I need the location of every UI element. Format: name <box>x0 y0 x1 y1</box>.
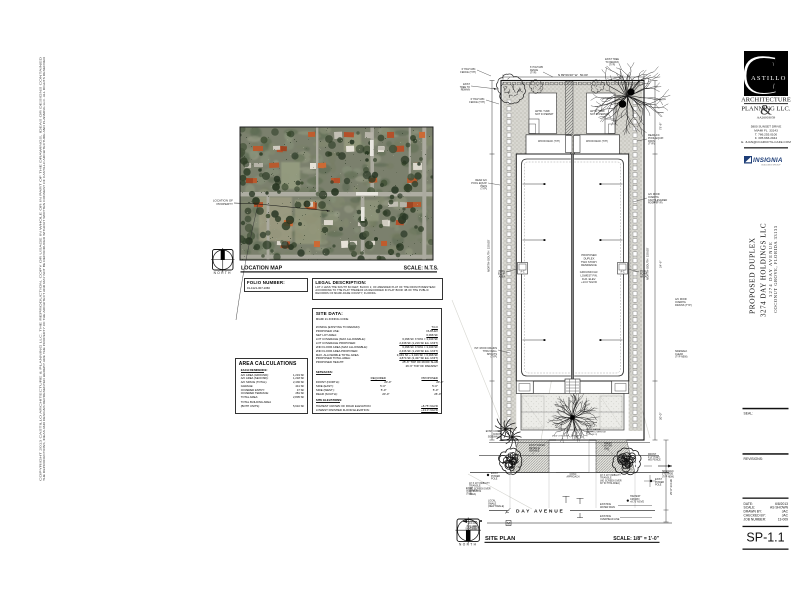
svg-text:(TYP NEW): (TYP NEW) <box>662 476 674 478</box>
svg-text:NOT IN PERMIT: NOT IN PERMIT <box>535 113 554 116</box>
svg-text:POOL: POOL <box>499 271 506 273</box>
svg-text:20'-0": 20'-0" <box>659 413 663 420</box>
svg-text:5'-0" WIDE: 5'-0" WIDE <box>662 474 674 476</box>
svg-text:TWO STORY: TWO STORY <box>581 260 597 264</box>
svg-text:COCONUT GROVE, FLORIDA 33133: COCONUT GROVE, FLORIDA 33133 <box>773 225 779 313</box>
svg-text:GROUND FLR.: GROUND FLR. <box>580 270 599 274</box>
svg-text:NORTH: NORTH <box>459 543 477 547</box>
svg-text:EXIST: EXIST <box>470 527 477 529</box>
svg-text:INSIGNIA: INSIGNIA <box>753 157 783 164</box>
svg-text:RESIDENCE: RESIDENCE <box>581 263 597 267</box>
svg-text:13-009: 13-009 <box>778 517 788 521</box>
svg-text:A-C: A-C <box>521 271 525 274</box>
svg-text:POLE: POLE <box>655 484 662 487</box>
svg-text:FLR. ELEV.: FLR. ELEV. <box>582 277 596 281</box>
svg-text:SCALE: 1/8" = 1'-0": SCALE: 1/8" = 1'-0" <box>613 536 659 542</box>
svg-text:A-C: A-C <box>621 271 625 274</box>
svg-text:(TYP): (TYP) <box>530 72 536 75</box>
svg-text:THE REPRODUCTIONS, IDEAS AND D: THE REPRODUCTIONS, IDEAS AND DESIGNS REP… <box>42 57 46 481</box>
svg-text:APPROACH: APPROACH <box>567 476 580 479</box>
svg-text:WOOD DECK (TYP): WOOD DECK (TYP) <box>538 140 560 143</box>
svg-text:(TYP): (TYP) <box>490 356 497 359</box>
svg-text:WOOD DECK (TYP): WOOD DECK (TYP) <box>586 140 608 143</box>
svg-text:(TYP): (TYP) <box>480 188 487 191</box>
svg-text:NORTH-SOUTH 150.00': NORTH-SOUTH 150.00' <box>646 247 650 280</box>
svg-text:PROPOSED: PROPOSED <box>581 253 596 257</box>
svg-text:24'-6": 24'-6" <box>659 261 663 268</box>
svg-text:EQUIP: EQUIP <box>498 274 506 276</box>
svg-text:OVERHEAD LINE: OVERHEAD LINE <box>600 518 620 521</box>
svg-text:NOT IN PERMIT: NOT IN PERMIT <box>590 113 609 116</box>
svg-text:SIDEWALK: SIDEWALK <box>466 490 478 493</box>
svg-text:N 89°09'40" W 50.00': N 89°09'40" W 50.00' <box>558 73 589 77</box>
svg-text:SIDEWALK: SIDEWALK <box>662 470 674 473</box>
svg-text:FRESH: FRESH <box>604 443 612 445</box>
svg-text:SERVICE: SERVICE <box>529 450 540 453</box>
svg-text:FENCE (TYP): FENCE (TYP) <box>460 71 476 74</box>
svg-text:CONC: CONC <box>570 474 577 476</box>
svg-text:TRIANGLE: TRIANGLE <box>600 477 612 480</box>
svg-text:SCALE: N.T.S.: SCALE: N.T.S. <box>404 266 439 272</box>
svg-text:SP-1.1: SP-1.1 <box>746 531 784 545</box>
svg-text:POLE: POLE <box>491 478 498 481</box>
svg-text:(TYP NEW): (TYP NEW) <box>675 356 688 359</box>
svg-text:SITE PLAN: SITE PLAN <box>485 536 515 542</box>
svg-text:3274 DAY AVENUE: 3274 DAY AVENUE <box>768 241 773 297</box>
svg-text:NORTH-SOUTH 150.00': NORTH-SOUTH 150.00' <box>487 239 491 272</box>
svg-text:30" IN THIS AREA): 30" IN THIS AREA) <box>600 482 620 485</box>
svg-text:ASTILLO: ASTILLO <box>751 75 787 82</box>
svg-text:(TYP OF 2): (TYP OF 2) <box>586 434 597 436</box>
svg-text:C: C <box>506 509 510 514</box>
svg-text:ARCHITECTURE: ARCHITECTURE <box>741 97 791 104</box>
svg-text:25'-0" R.O.W.: 25'-0" R.O.W. <box>669 478 673 495</box>
svg-text:WATER MAIN: WATER MAIN <box>600 506 615 509</box>
svg-text:DRAINS (TYP): DRAINS (TYP) <box>675 304 692 307</box>
svg-text:4 3/4" X 9' DEEP ... RELIEF: 4 3/4" X 9' DEEP ... RELIEF <box>552 436 580 438</box>
svg-text:ROOF (TYP): ROOF (TYP) <box>648 202 663 205</box>
svg-text:EXIST: EXIST <box>466 488 473 490</box>
svg-text:JOB NUMBER:: JOB NUMBER: <box>744 517 767 521</box>
svg-text:NORTH: NORTH <box>214 271 232 275</box>
svg-text:M: M <box>507 522 510 526</box>
svg-text:(TYP): (TYP) <box>609 64 615 67</box>
svg-text:PROPOSED DUPLEX: PROPOSED DUPLEX <box>748 237 757 314</box>
svg-text:SIDEWALK: SIDEWALK <box>488 436 501 439</box>
svg-text:3274 DAY HOLDINGS LLC: 3274 DAY HOLDINGS LLC <box>760 223 768 317</box>
svg-text:WATER: WATER <box>604 445 612 448</box>
svg-text:FENCE (TYP): FENCE (TYP) <box>469 101 485 104</box>
svg-text:(TYP): (TYP) <box>648 143 655 146</box>
svg-text:LOCATION MAP: LOCATION MAP <box>241 266 283 272</box>
svg-text:(NEW SWALE): (NEW SWALE) <box>488 505 504 508</box>
svg-text:PLANNING LLC.: PLANNING LLC. <box>741 106 791 113</box>
svg-text:10' X 10' VISIBILITY: 10' X 10' VISIBILITY <box>600 475 621 477</box>
svg-text:(NO SCREEN OVER: (NO SCREEN OVER <box>600 480 622 482</box>
svg-text:LOWEST FIN.: LOWEST FIN. <box>580 273 597 277</box>
svg-text:PROP WATER: PROP WATER <box>586 428 601 431</box>
svg-text:E. JUAN@CCARCFTG-CAFE.COM: E. JUAN@CCARCFTG-CAFE.COM <box>741 140 791 144</box>
svg-text:COPYRIGHT 2013 CASTILLO ARCHIT: COPYRIGHT 2013 CASTILLO ARCHITECTURE & P… <box>39 57 43 481</box>
svg-text:SEAL:: SEAL: <box>744 412 754 416</box>
svg-text:DUPLEX: DUPLEX <box>584 256 595 260</box>
svg-text:REMAIN: REMAIN <box>461 89 471 92</box>
svg-text:AREA: AREA <box>499 275 506 278</box>
svg-text:+8.75' NGVD: +8.75' NGVD <box>630 501 644 504</box>
svg-text:WD FENCE: WD FENCE <box>648 459 661 462</box>
svg-text:AA26003059: AA26003059 <box>757 116 776 120</box>
svg-text:73'-8": 73'-8" <box>659 123 663 130</box>
svg-text:PROPERTY: PROPERTY <box>217 202 233 206</box>
svg-text:DAY AVENUE: DAY AVENUE <box>516 509 564 515</box>
svg-text:+13.0' NGVD: +13.0' NGVD <box>581 280 597 284</box>
svg-text:REVISIONS:: REVISIONS: <box>744 457 763 461</box>
svg-text:10' X 10' VISIBILITY: 10' X 10' VISIBILITY <box>469 483 490 485</box>
svg-text:LINE: LINE <box>604 448 610 450</box>
svg-text:BUILDING GROUP: BUILDING GROUP <box>762 164 782 166</box>
svg-text:(TYP): (TYP) <box>466 493 472 495</box>
